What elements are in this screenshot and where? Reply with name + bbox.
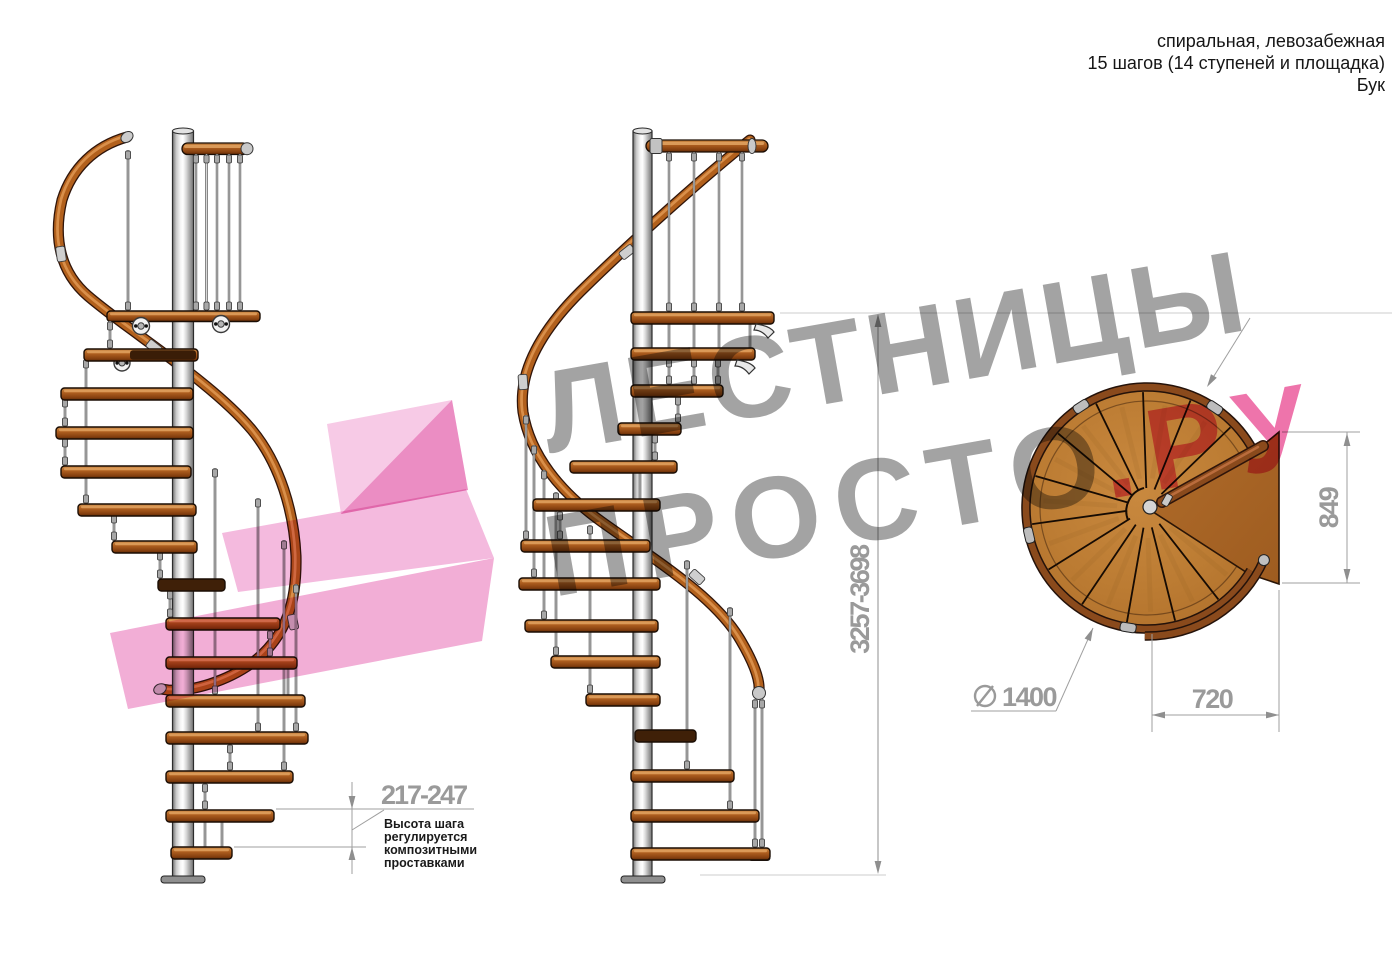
svg-text:регулируется: регулируется: [384, 830, 467, 844]
svg-text:15 шагов (14 ступеней и площад: 15 шагов (14 ступеней и площадка): [1087, 53, 1385, 73]
svg-text:композитными: композитными: [384, 843, 477, 857]
svg-text:проставками: проставками: [384, 856, 465, 870]
svg-text:720: 720: [1192, 684, 1233, 714]
svg-text:1400: 1400: [1002, 682, 1057, 712]
svg-text:Высота шага: Высота шага: [384, 817, 465, 831]
svg-text:спиральная, левозабежная: спиральная, левозабежная: [1157, 31, 1385, 51]
svg-text:217-247: 217-247: [381, 780, 467, 810]
svg-text:849: 849: [1314, 486, 1344, 528]
svg-text:Бук: Бук: [1357, 75, 1385, 95]
